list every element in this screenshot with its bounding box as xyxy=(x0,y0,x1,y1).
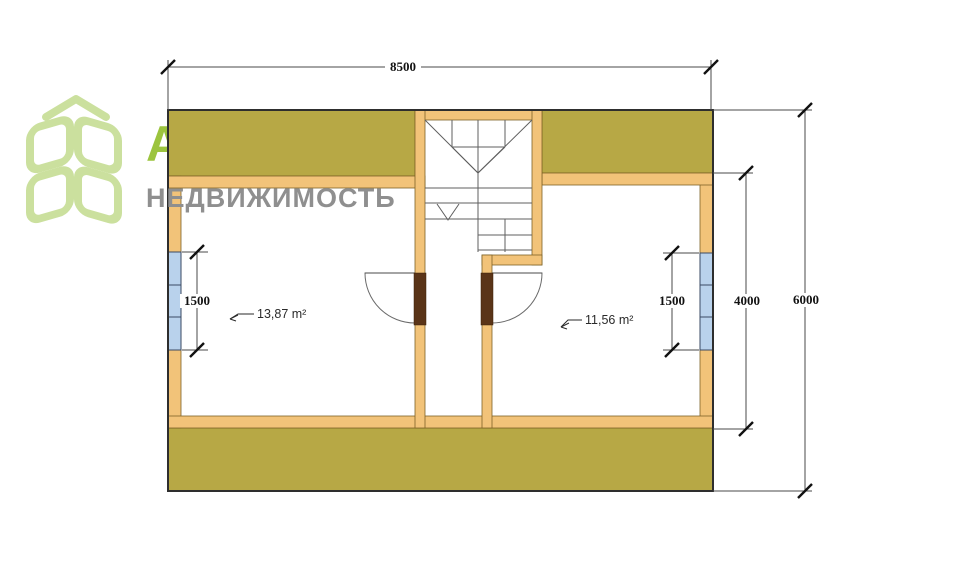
right-window xyxy=(700,253,713,350)
wall-top-right-room xyxy=(542,173,713,185)
left-door-leaf xyxy=(414,273,426,325)
floorplan xyxy=(168,110,713,491)
wall-bottom-inner xyxy=(168,416,713,428)
dimension-4000: 4000 xyxy=(713,166,764,436)
brand-subtitle: НЕДВИЖИМОСТЬ xyxy=(146,183,396,213)
floor-plan-canvas: АКЦЕНТ xyxy=(0,0,962,572)
cube-logo-icon xyxy=(30,99,118,222)
left-window xyxy=(168,252,181,350)
dim-total-height: 6000 xyxy=(793,292,819,307)
right-door-leaf xyxy=(481,273,493,325)
floor-plan-page: АКЦЕНТ xyxy=(0,0,962,572)
left-room-area: 13,87 m² xyxy=(257,307,306,321)
dim-right-window: 1500 xyxy=(659,293,685,308)
wall-stair-right xyxy=(532,110,542,265)
roof-band-top-left xyxy=(168,110,415,176)
roof-band-bottom xyxy=(168,428,713,491)
wall-corridor-left xyxy=(415,110,425,428)
dimension-8500: 8500 xyxy=(161,59,718,110)
right-room-area: 11,56 m² xyxy=(585,313,633,327)
roof-band-top-right xyxy=(542,110,713,173)
dim-right-inner-height: 4000 xyxy=(734,293,760,308)
dim-left-window: 1500 xyxy=(184,293,210,308)
wall-stair-top xyxy=(415,110,542,120)
dim-total-width: 8500 xyxy=(390,59,416,74)
